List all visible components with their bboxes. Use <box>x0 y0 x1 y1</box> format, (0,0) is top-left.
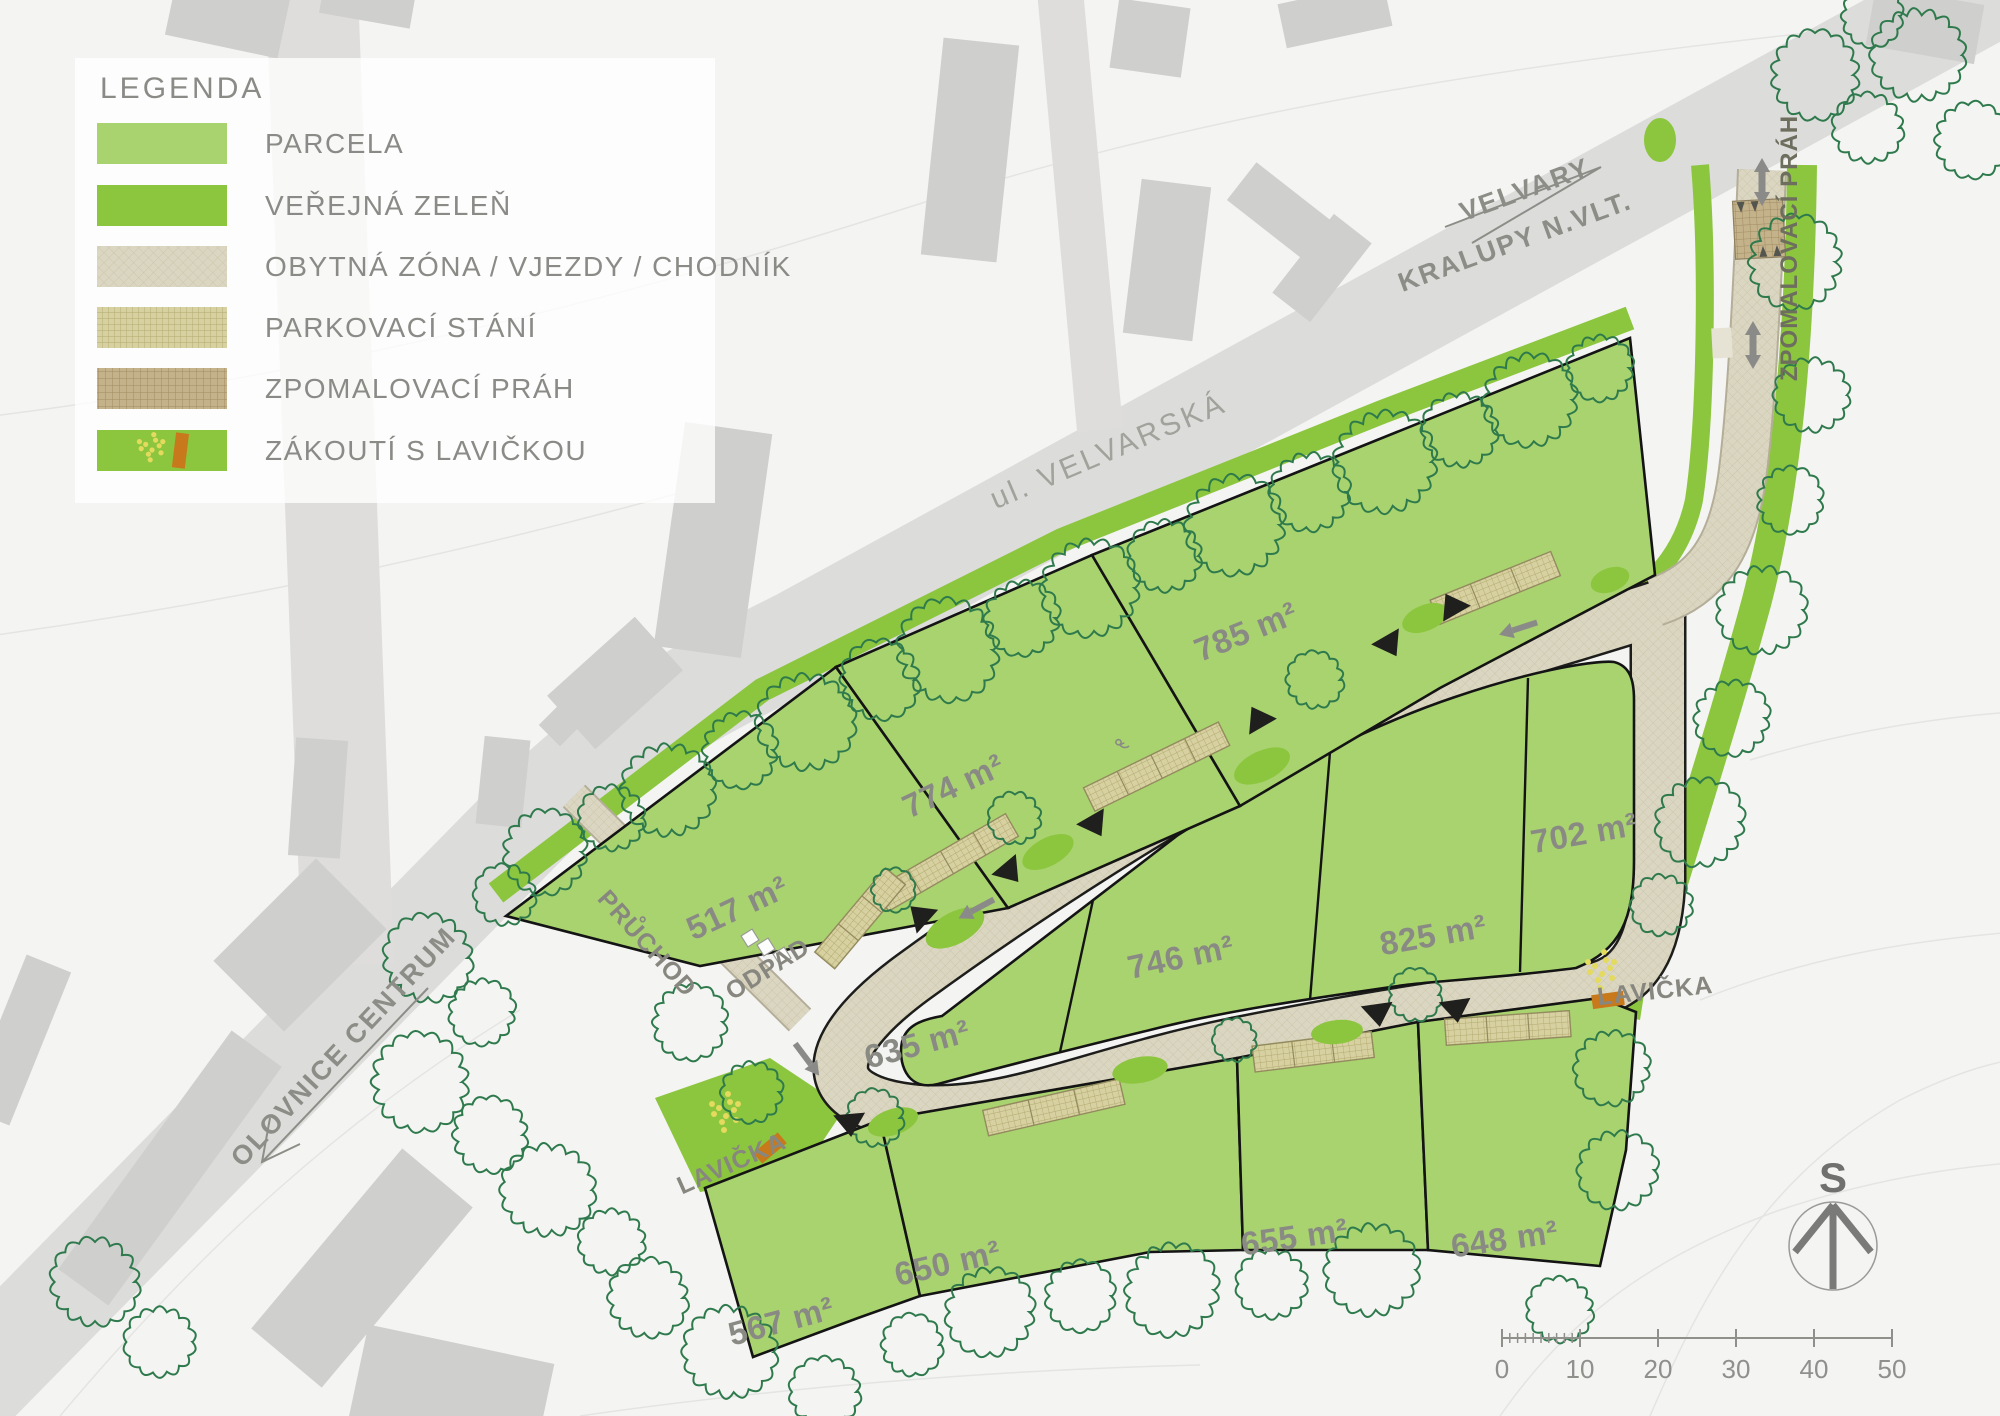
planting-dot <box>1603 957 1609 963</box>
green-shrub <box>1644 118 1676 162</box>
legend-swatch-parcela <box>97 123 227 164</box>
planting-dot <box>1592 963 1598 969</box>
planting-dot <box>727 1099 733 1105</box>
planting-dot <box>160 439 165 444</box>
planting-dot <box>157 443 162 448</box>
legend-label-verejna-zelen: VEŘEJNÁ ZELEŇ <box>265 190 512 221</box>
planting-dot <box>1587 969 1593 975</box>
planting-dot <box>1585 959 1591 965</box>
legend-swatch-obytna-zona <box>97 246 227 287</box>
site-plan-map: 517 m² 774 m² 785 m² 635 m² 746 m² 825 m… <box>0 0 2000 1416</box>
planting-dot <box>1609 975 1615 981</box>
planting-dot <box>709 1101 715 1107</box>
planting-dot <box>149 447 154 452</box>
planting-dot <box>731 1107 737 1113</box>
legend-label-zakouti: ZÁKOUTÍ S LAVIČKOU <box>265 435 587 466</box>
building <box>476 736 531 828</box>
legend-swatch-parkovaci-stani <box>97 307 227 348</box>
compass-label: S <box>1819 1154 1847 1201</box>
planting-dot <box>711 1111 717 1117</box>
site-plan-page: 517 m² 774 m² 785 m² 635 m² 746 m² 825 m… <box>0 0 2000 1416</box>
legend-label-parkovaci-stani: PARKOVACÍ STÁNÍ <box>265 312 537 343</box>
planting-dot <box>1611 959 1617 965</box>
planting-dot <box>137 439 142 444</box>
legend-panel: LEGENDA PARCELA VEŘEJNÁ ZELEŇ OBYTNÁ ZÓN… <box>75 58 792 503</box>
legend-swatch-zpomalovaci-prah <box>97 368 227 409</box>
planting-dot <box>153 438 158 443</box>
legend-label-parcela: PARCELA <box>265 128 404 159</box>
planting-dot <box>1601 949 1607 955</box>
planting-dot <box>1607 965 1613 971</box>
planting-dot <box>723 1113 729 1119</box>
planting-dot <box>146 452 151 457</box>
legend-swatch-verejna-zelen <box>97 185 227 226</box>
planting-dot <box>716 1105 722 1111</box>
planting-dot <box>721 1127 727 1133</box>
sidewalk-patch <box>1711 327 1733 358</box>
planting-dot <box>148 457 153 462</box>
scale-tick-label: 20 <box>1644 1354 1673 1384</box>
planting-dot <box>158 450 163 455</box>
scale-tick-label: 30 <box>1722 1354 1751 1384</box>
planting-dot <box>735 1101 741 1107</box>
planting-dot <box>725 1091 731 1097</box>
planting-dot <box>139 446 144 451</box>
scale-tick-label: 50 <box>1878 1354 1907 1384</box>
legend-title: LEGENDA <box>100 72 264 105</box>
legend-label-zpomalovaci-prah: ZPOMALOVACÍ PRÁH <box>265 373 575 404</box>
planting-dot <box>1599 971 1605 977</box>
building <box>288 737 348 858</box>
scale-tick-label: 0 <box>1495 1354 1509 1384</box>
planting-dot <box>151 432 156 437</box>
scale-tick-label: 10 <box>1566 1354 1595 1384</box>
legend-label-obytna-zona: OBYTNÁ ZÓNA / VJEZDY / CHODNÍK <box>265 251 792 282</box>
label-zpomalovaci-prah: ZPOMALOVACÍ PRÁH <box>1775 115 1803 381</box>
planting-dot <box>143 442 148 447</box>
building <box>1109 0 1190 78</box>
scale-tick-label: 40 <box>1800 1354 1829 1384</box>
legend-swatch-zakouti <box>97 430 227 471</box>
planting-dot <box>719 1119 725 1125</box>
